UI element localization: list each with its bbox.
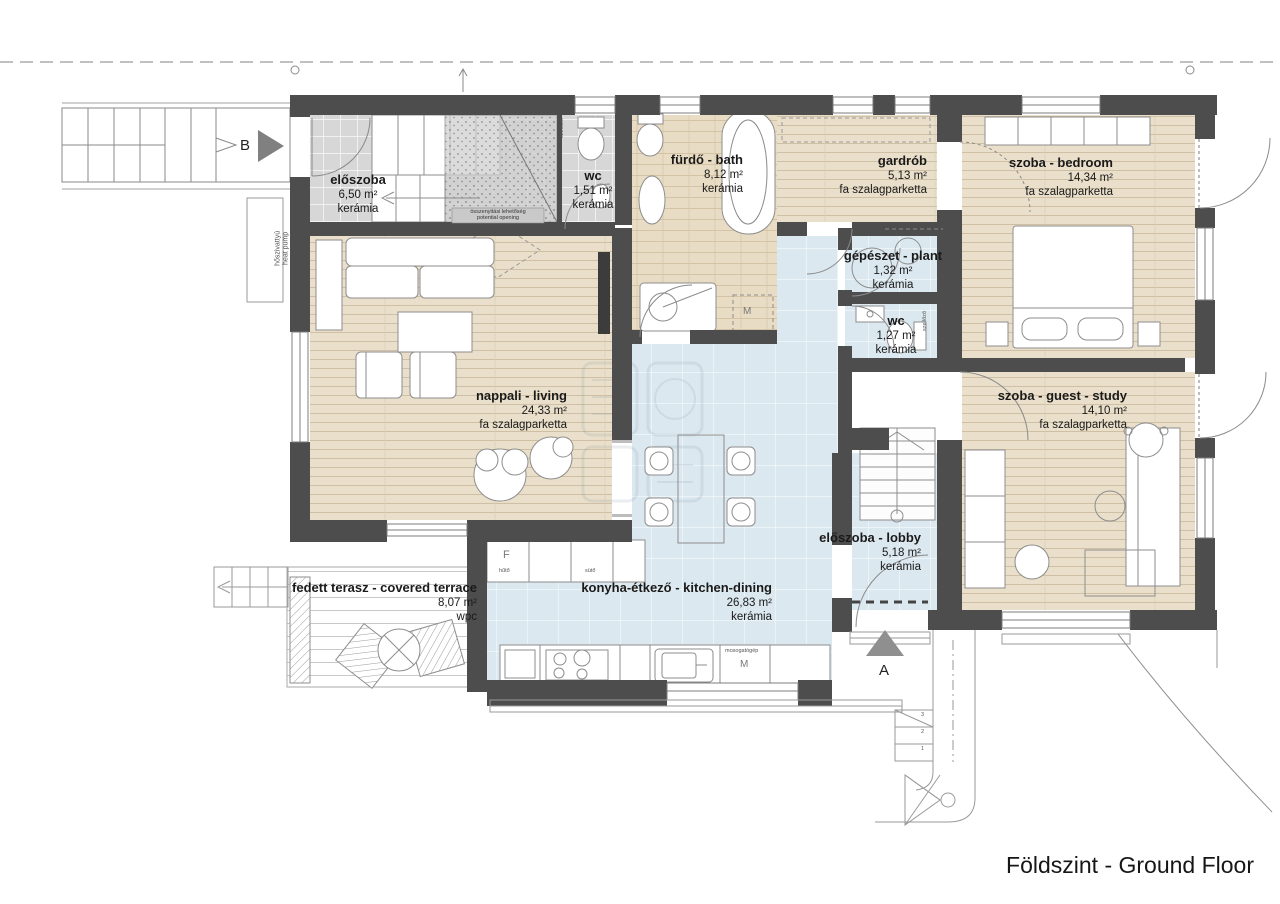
potential-opening-label: összenyitási lehetőség potential opening [470, 209, 525, 222]
floorplan-drawing [0, 0, 1280, 904]
section-marker-b: B [240, 137, 250, 154]
external-stair-b [62, 108, 290, 182]
room-label-bedroom: szoba - bedroom 14,34 m² fa szalagparket… [1009, 155, 1113, 200]
room-label-lobby: előszoba - lobby 5,18 m² kerámia [819, 530, 921, 575]
room-label-furdo: fürdő - bath 8,12 m² kerámia [671, 152, 743, 197]
property-line [0, 62, 1280, 92]
entrance-arrow-a [866, 630, 904, 656]
vent-label-1: szellőző [559, 118, 565, 138]
room-label-kitchen: konyha-étkező - kitchen-dining 26,83 m² … [581, 580, 772, 625]
floorplan-page: előszoba 6,50 m² kerámia wc 1,51 m² kerá… [0, 0, 1280, 904]
step-number-3: 3 [921, 712, 924, 718]
room-label-nappali: nappali - living 24,33 m² fa szalagparke… [476, 388, 567, 433]
room-label-guest: szoba - guest - study 14,10 m² fa szalag… [998, 388, 1127, 433]
plan-title: Földszint - Ground Floor [1006, 852, 1254, 879]
washer-letter: M [743, 306, 751, 317]
room-label-wc1: wc 1,51 m² kerámia [573, 168, 614, 213]
step-number-1: 1 [921, 746, 924, 752]
room-label-eloszoba: előszoba 6,50 m² kerámia [330, 172, 386, 217]
heat-pump-label: hőszivattyú heat pump [275, 198, 292, 298]
oven-label: sütő [585, 568, 595, 574]
dishwasher-letter: M [740, 659, 748, 670]
fridge-label: hűtő [499, 568, 510, 574]
fridge-letter: F [503, 549, 510, 561]
step-number-2: 2 [921, 729, 924, 735]
entrance-marker-a: A [879, 662, 889, 679]
room-label-terasz: fedett terasz - covered terrace 8,07 m² … [292, 580, 477, 625]
vent-label-2: szellőző [922, 311, 928, 331]
room-label-wc2: wc 1,27 m² kerámia [876, 313, 917, 358]
room-label-gardrob: gardrób 5,13 m² fa szalagparketta [839, 153, 927, 198]
room-label-gepeszet: gépészet - plant 1,32 m² kerámia [844, 248, 942, 293]
dishwasher-label: mosogatógép [725, 648, 758, 654]
